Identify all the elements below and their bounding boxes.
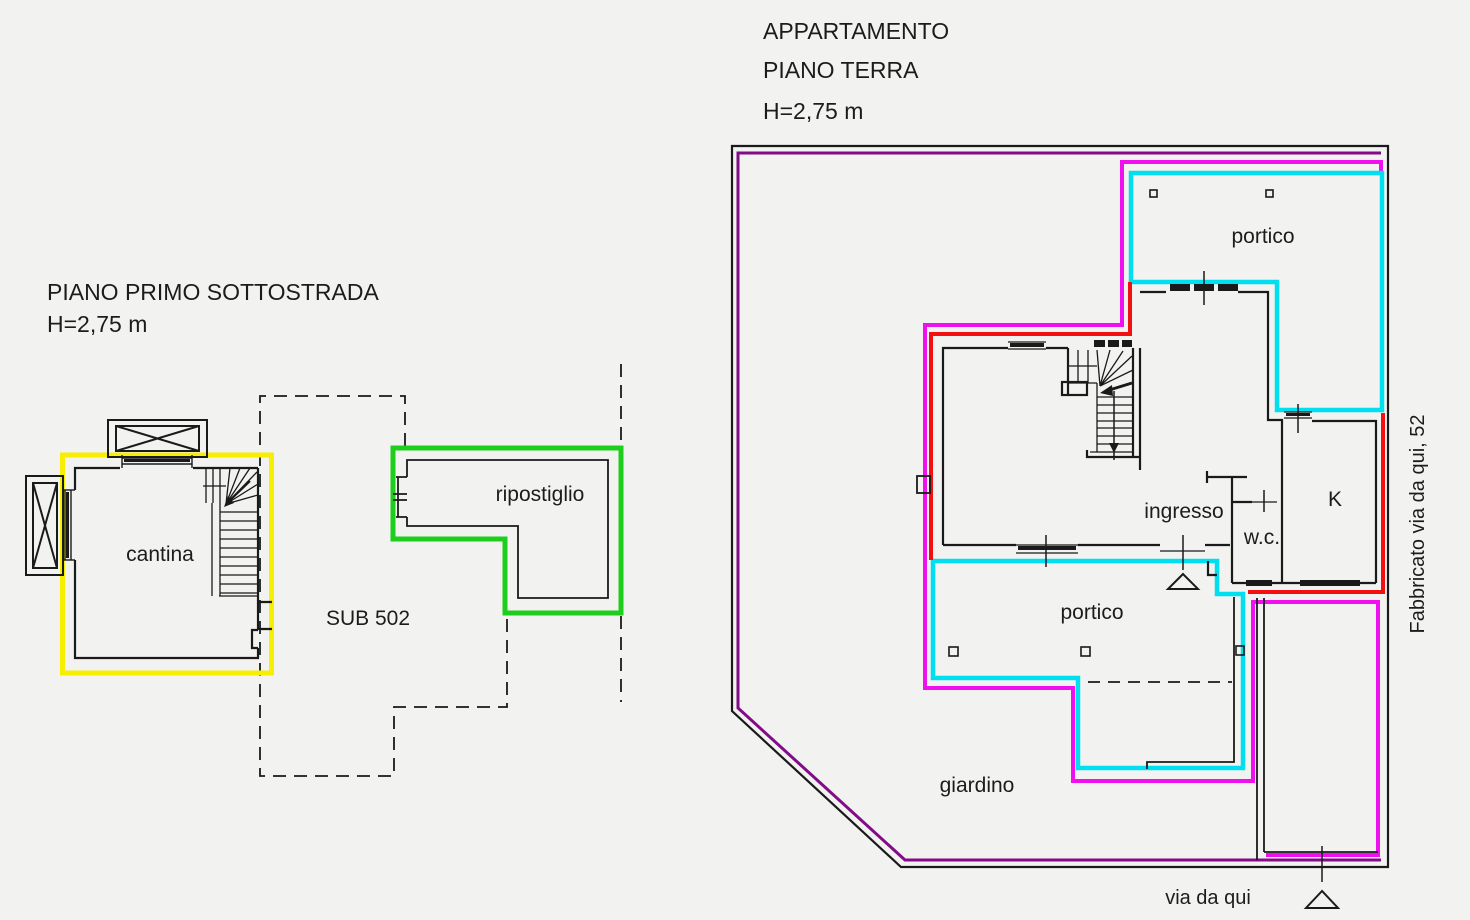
portico-top-label: portico (1231, 225, 1294, 248)
giardino-label: giardino (940, 774, 1015, 797)
floor-plan-page: PIANO PRIMO SOTTOSTRADA H=2,75 m (0, 0, 1470, 920)
ingresso-label: ingresso (1144, 500, 1223, 523)
kitchen-label: K (1328, 488, 1342, 511)
right-plan-height-label: H=2,75 m (763, 98, 863, 124)
portico-bottom-label: portico (1060, 601, 1123, 624)
right-plan-title: APPARTAMENTO (763, 18, 949, 44)
fabbricato-label: Fabbricato via da qui, 52 (1407, 414, 1429, 633)
left-plan-title: PIANO PRIMO SOTTOSTRADA (47, 279, 379, 305)
ripostiglio-label: ripostiglio (496, 483, 585, 506)
floor-plan-canvas: PIANO PRIMO SOTTOSTRADA H=2,75 m (0, 0, 1470, 920)
via-da-qui-label: via da qui (1165, 887, 1251, 909)
wc-label: w.c. (1243, 526, 1280, 549)
cantina-label: cantina (126, 543, 194, 566)
left-plan-height-label: H=2,75 m (47, 311, 147, 337)
right-plan-subtitle: PIANO TERRA (763, 57, 919, 83)
sub502-label: SUB 502 (326, 607, 410, 630)
